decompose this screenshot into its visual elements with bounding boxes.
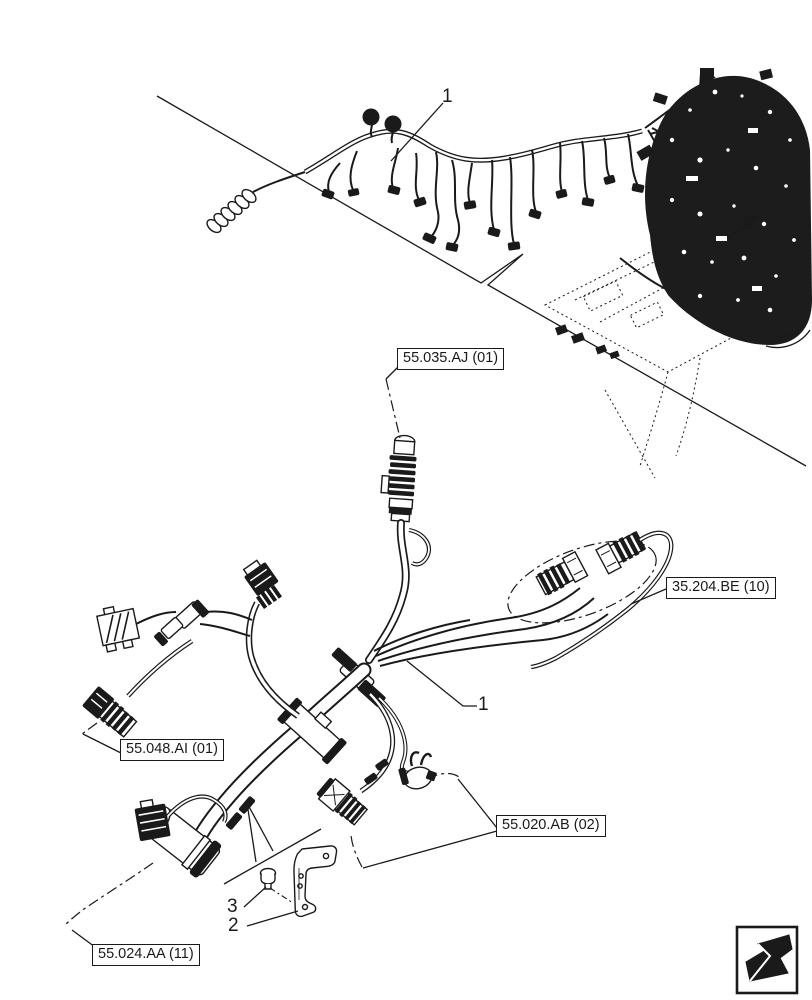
ref-label-55-035-aj-01[interactable]: 55.035.AJ (01) [397,348,504,370]
callout-item-1-overview: 1 [442,87,453,107]
ref-label-35-204-be-10[interactable]: 35.204.BE (10) [666,577,776,599]
callout-item-3: 3 [227,897,238,917]
corrugated-tube [205,172,305,235]
callout-item-1-detail: 1 [478,695,489,715]
bracket [294,846,337,916]
machine-illustration [545,68,812,478]
ref-label-55-024-aa-11[interactable]: 55.024.AA (11) [92,944,200,966]
overview-connectors [321,128,692,252]
dash-dot-lines [64,379,459,926]
callout-item-2: 2 [228,916,239,936]
connector-upper-left [239,557,287,609]
diagram-canvas: 55.035.AJ (01) 35.204.BE (10) 55.048.AI … [0,0,812,1000]
diagram-artwork [0,0,812,1000]
connector-lower-left [82,641,192,739]
junction-left [153,599,252,647]
bolt [261,869,276,890]
connector-top [379,434,418,522]
ref-label-55-048-ai-01[interactable]: 55.048.AI (01) [120,739,224,761]
connector-pair-right [497,524,671,667]
connector-ribbed-bottom [315,776,369,827]
page-back-arrow-icon [737,927,797,993]
main-harness-drawing [82,434,671,916]
ref-label-55-020-ab-02[interactable]: 55.020.AB (02) [496,815,606,837]
